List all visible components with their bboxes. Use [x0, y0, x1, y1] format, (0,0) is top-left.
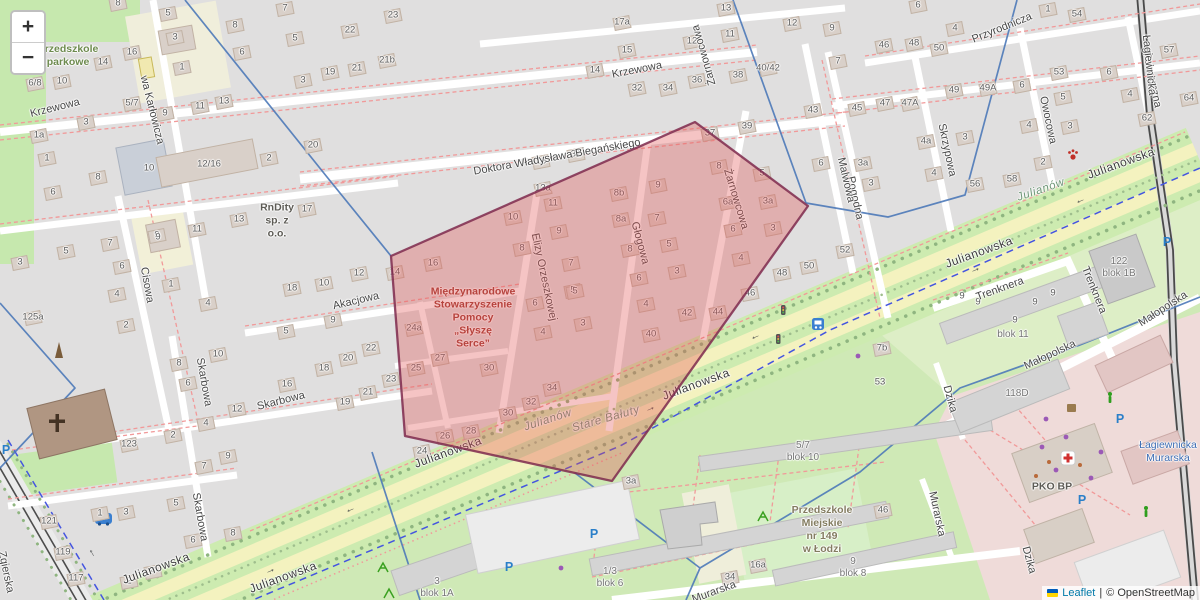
house-number: 6	[532, 298, 537, 309]
house-number: 9	[829, 23, 834, 34]
house-number: 11	[192, 224, 202, 235]
arrow-icon: →	[968, 261, 983, 276]
district-label: Julianów	[1016, 176, 1067, 203]
poi-label: Przedszkoleparkowe	[38, 43, 99, 69]
house-number: 47	[880, 98, 891, 109]
openstreetmap-link[interactable]: © OpenStreetMap	[1106, 587, 1195, 599]
attribution-bar: Leaflet | © OpenStreetMap	[1042, 586, 1200, 600]
house-number: 6	[1106, 67, 1111, 78]
street-label: Dzika	[941, 384, 960, 414]
leaflet-link[interactable]: Leaflet	[1062, 587, 1095, 599]
house-number: 6	[730, 224, 735, 235]
house-number: 11	[725, 29, 735, 40]
house-number: 6	[818, 158, 823, 169]
house-number: 4	[952, 23, 957, 34]
street-label: Owocowa	[1037, 95, 1059, 145]
parking-icon: P	[590, 527, 598, 541]
house-number: 22	[345, 25, 356, 36]
house-number: 10	[57, 76, 68, 87]
house-number: 3	[1067, 121, 1072, 132]
house-number: 1	[168, 279, 173, 290]
label-layer: 8531161486752223192121b36/8105/7911131a3…	[0, 0, 1200, 600]
house-number: 3	[172, 32, 177, 43]
street-label: Skrzypowa	[936, 122, 959, 177]
house-number: 6	[119, 261, 124, 272]
house-number: 5	[292, 33, 297, 44]
street-label: Murarska	[690, 579, 737, 600]
house-number: 54	[1072, 9, 1083, 20]
house-number: 3	[83, 117, 88, 128]
house-number: 6	[915, 0, 920, 11]
house-number: 9	[1050, 288, 1055, 299]
house-number: 46	[878, 505, 889, 516]
house-number: 9	[1012, 315, 1017, 326]
house-number: 16	[282, 379, 293, 390]
arrow-icon: ←	[1073, 192, 1088, 207]
house-number: 5	[165, 8, 170, 19]
house-number: 50	[804, 261, 815, 272]
house-number: 17	[302, 204, 313, 215]
block-label: 5/7blok 10	[787, 440, 819, 464]
ukraine-flag-icon	[1047, 589, 1058, 597]
house-number: 44	[713, 307, 724, 318]
house-number: 32	[632, 83, 643, 94]
block-label: 122blok 1B	[1102, 256, 1135, 280]
block-label: 118D	[1005, 388, 1028, 400]
house-number: 3	[17, 257, 22, 268]
house-number: 58	[1007, 174, 1018, 185]
house-number: 4	[205, 298, 210, 309]
house-number: 4	[1127, 89, 1132, 100]
house-number: 36	[692, 75, 703, 86]
house-number: 13	[219, 96, 230, 107]
house-number: 9	[655, 180, 660, 191]
street-label: Trenknera	[975, 275, 1026, 303]
house-number: 117	[68, 573, 83, 584]
house-number: 16	[127, 47, 138, 58]
house-number: 39	[742, 121, 753, 132]
district-label: Stare Bałuty	[571, 404, 641, 435]
house-number: 2	[1040, 157, 1045, 168]
house-number: 13	[234, 214, 245, 225]
street-label: Julianowska	[247, 558, 318, 595]
house-number: 6	[239, 47, 244, 58]
house-number: 4	[540, 327, 545, 338]
house-number: 6/8	[28, 78, 41, 89]
house-number: 11	[195, 101, 205, 112]
house-number: 9	[155, 232, 160, 243]
house-number: 1	[44, 153, 49, 164]
house-number: 27	[435, 353, 446, 364]
house-number: 21	[352, 63, 363, 74]
house-number: 53	[875, 377, 886, 388]
house-number: 5	[759, 168, 764, 179]
street-label: Murarska	[926, 490, 947, 537]
house-number: 20	[343, 353, 354, 364]
poi-label: MiędzynarodoweStowarzyszeniePomocy„Słysz…	[431, 286, 516, 351]
house-number: 7	[654, 213, 659, 224]
house-number: 53	[1054, 67, 1065, 78]
arrow-icon: ←	[748, 328, 763, 343]
house-number: 19	[325, 67, 336, 78]
house-number: 8	[176, 358, 181, 369]
house-number: 19	[340, 397, 351, 408]
street-label: Krzewowa	[611, 59, 663, 80]
house-number: 8	[232, 20, 237, 31]
house-number: 13	[721, 3, 732, 14]
house-number: 37	[705, 128, 716, 139]
house-number: 3	[770, 223, 775, 234]
street-label: Krzewowa	[29, 96, 81, 120]
block-label: 9blok 8	[840, 556, 867, 580]
house-number: 12	[232, 404, 243, 415]
block-label: blok 11	[997, 329, 1029, 341]
house-number: 34	[547, 383, 558, 394]
street-label: Cisowa	[138, 266, 156, 304]
house-number: 30	[503, 408, 514, 419]
poi-label: RnDitysp. zo.o.	[260, 202, 294, 241]
house-number: 14	[590, 65, 601, 76]
house-number: 40/42	[756, 63, 780, 74]
house-number: 8	[230, 528, 235, 539]
house-number: 12	[787, 18, 798, 29]
house-number: 7	[107, 238, 112, 249]
house-number: 4	[643, 299, 648, 310]
house-number: 4	[931, 168, 936, 179]
house-number: 30	[484, 363, 495, 374]
house-number: 3	[123, 507, 128, 518]
house-number: 6	[50, 187, 55, 198]
house-number: 48	[909, 38, 920, 49]
parking-icon: P	[1116, 412, 1124, 426]
house-number: 46	[879, 40, 890, 51]
house-number: 9	[959, 291, 964, 302]
house-number: 43	[808, 105, 819, 116]
house-number: 8	[95, 172, 100, 183]
street-label: Małopolska	[1136, 289, 1189, 329]
house-number: 9	[225, 451, 230, 462]
house-number: 4	[203, 418, 208, 429]
arrow-icon: ↑	[87, 546, 98, 559]
house-number: 46	[745, 288, 756, 299]
house-number: 12/16	[197, 159, 221, 170]
house-number: 9	[162, 108, 167, 119]
house-number: 8	[627, 244, 632, 255]
house-number: 23	[388, 10, 399, 21]
street-label: Julianowska	[660, 365, 731, 402]
house-number: 8a	[616, 214, 627, 225]
house-number: 57	[1164, 45, 1175, 56]
house-number: 64	[1184, 93, 1195, 104]
parking-icon: P	[1163, 235, 1171, 249]
street-label: Akacjowa	[332, 290, 381, 312]
street-label: Skarbowa	[256, 389, 306, 412]
street-label: Skarbowa	[194, 357, 214, 407]
house-number: 119	[55, 547, 70, 558]
house-number: 47A	[902, 98, 919, 109]
house-number: 4	[114, 289, 119, 300]
house-number: 45	[852, 103, 863, 114]
zoom-control: + −	[10, 10, 46, 75]
house-number: 6	[185, 378, 190, 389]
house-number: 7b	[877, 343, 888, 354]
house-number: 48	[777, 268, 788, 279]
house-number: 34	[663, 83, 674, 94]
street-label: Małopolska	[1022, 338, 1077, 372]
house-number: 10	[213, 349, 224, 360]
house-number: 10	[319, 278, 330, 289]
district-label: Julianów	[523, 407, 574, 434]
house-number: 9	[330, 315, 335, 326]
house-number: 1a	[34, 130, 45, 141]
house-number: 7	[568, 258, 573, 269]
map-canvas[interactable]: 8531161486752223192121b36/8105/7911131a3…	[0, 0, 1200, 600]
house-number: 18	[319, 363, 330, 374]
house-number: 38	[733, 70, 744, 81]
house-number: 7	[201, 461, 206, 472]
arrow-icon: ←	[343, 501, 358, 516]
house-number: 3	[580, 318, 585, 329]
house-number: 16	[428, 258, 439, 269]
house-number: 9	[556, 226, 561, 237]
street-label: Dzika	[1020, 545, 1039, 575]
house-number: 2	[170, 430, 175, 441]
house-number: 8	[115, 0, 120, 9]
zoom-in-button[interactable]: +	[12, 12, 44, 43]
house-number: 49	[949, 85, 960, 96]
house-number: 56	[970, 179, 981, 190]
house-number: 3a	[763, 196, 774, 207]
house-number: 3a	[626, 476, 637, 487]
house-number: 121	[41, 516, 57, 527]
arrow-icon: →	[643, 400, 658, 415]
house-number: 5	[572, 286, 577, 297]
house-number: 7	[282, 3, 287, 14]
house-number: 15	[622, 45, 633, 56]
house-number: 9	[1032, 297, 1037, 308]
house-number: 3	[674, 266, 679, 277]
house-number: 2	[266, 153, 271, 164]
house-number: 52	[840, 245, 851, 256]
house-number: 1	[179, 62, 184, 73]
block-label: 1/3blok 6	[597, 566, 624, 590]
house-number: 62	[1142, 113, 1153, 124]
house-number: 6	[636, 273, 641, 284]
house-number: 1	[1045, 4, 1050, 15]
house-number: 5	[1060, 92, 1065, 103]
house-number: 5/7	[125, 98, 138, 109]
house-number: 14	[98, 57, 109, 68]
house-number: 40	[646, 329, 657, 340]
house-number: 3	[300, 75, 305, 86]
house-number: 4	[1026, 120, 1031, 131]
house-number: 5	[173, 498, 178, 509]
house-number: 6	[1019, 80, 1024, 91]
house-number: 26	[440, 431, 451, 442]
house-number: 12	[354, 268, 365, 279]
house-number: 6	[190, 535, 195, 546]
house-number: 5	[283, 326, 288, 337]
poi-label: PKO BP	[1032, 481, 1072, 494]
house-number: 125a	[22, 312, 43, 323]
zoom-out-button[interactable]: −	[12, 43, 44, 73]
house-number: 11	[548, 198, 558, 209]
house-number: 17a	[614, 17, 630, 28]
house-number: 8b	[614, 188, 625, 199]
house-number: 21b	[379, 55, 395, 66]
house-number: 13a	[535, 183, 551, 194]
house-number: 123	[121, 439, 137, 450]
street-label: Przyrodnicza	[970, 11, 1033, 46]
poi-label: PrzedszkoleMiejskienr 149w Łodzi	[792, 504, 853, 556]
house-number: 3a	[858, 158, 869, 169]
attribution-separator: |	[1099, 587, 1102, 599]
house-number: 4a	[921, 136, 932, 147]
house-number: 50	[934, 43, 945, 54]
house-number: 18	[287, 283, 298, 294]
street-label: Łagiewnicka	[1140, 34, 1158, 95]
street-label: Doktora Władysława Biegańskiego	[473, 136, 642, 177]
poi-label: ŁagiewnickaMurarska	[1139, 439, 1197, 465]
house-number: 49A	[980, 83, 997, 94]
house-number: 20	[308, 140, 319, 151]
house-number: 5	[666, 239, 671, 250]
house-number: 21	[363, 387, 374, 398]
block-label: 3blok 1A	[420, 576, 453, 600]
house-number: 32	[526, 397, 537, 408]
house-number: 16a	[750, 560, 766, 571]
house-number: 8	[519, 243, 524, 254]
house-number: 24a	[406, 323, 422, 334]
house-number: 14	[390, 267, 401, 278]
house-number: 1	[97, 508, 102, 519]
parking-icon: P	[2, 443, 10, 457]
street-label: Julianowska	[1085, 144, 1156, 181]
house-number: 22	[366, 343, 377, 354]
house-number: 3	[962, 132, 967, 143]
house-number: 42	[682, 308, 693, 319]
house-number: 7	[835, 56, 840, 67]
house-number: 25	[411, 363, 422, 374]
parking-icon: P	[1078, 493, 1086, 507]
street-label: Julianowska	[120, 549, 191, 586]
house-number: 4	[738, 253, 743, 264]
house-number: 10	[144, 163, 155, 174]
parking-icon: P	[505, 560, 513, 574]
house-number: 3	[868, 178, 873, 189]
house-number: 23	[386, 374, 397, 385]
house-number: 10	[508, 212, 519, 223]
house-number: 2	[123, 320, 128, 331]
street-label: Zgierska	[0, 550, 16, 594]
house-number: 5	[63, 246, 68, 257]
